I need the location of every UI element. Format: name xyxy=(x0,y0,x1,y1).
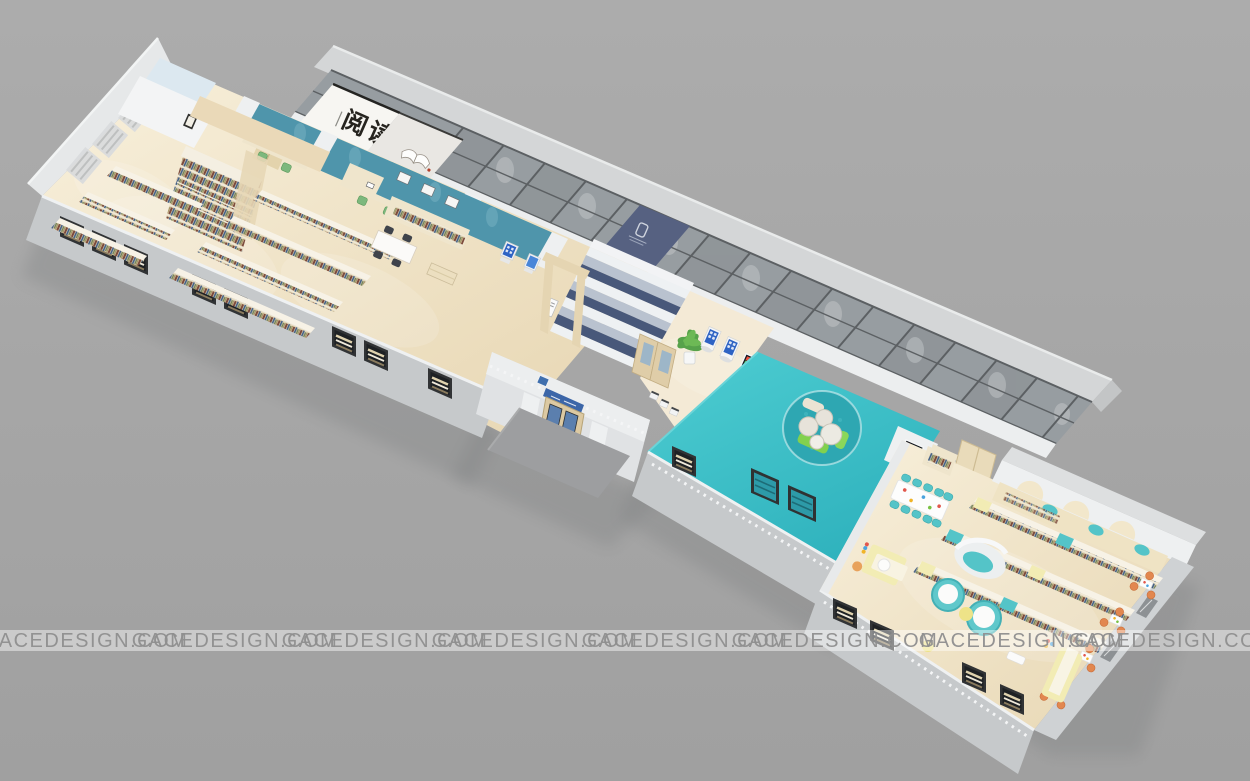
watermark-text: GACEDESIGN.COM xyxy=(1069,630,1250,652)
rendering-canvas: 阅读 xyxy=(0,0,1250,781)
watermark-text: GACEDESIGN.COM xyxy=(732,630,939,652)
sunken-pit xyxy=(783,391,861,465)
watermark-band: GACEDESIGN.COM GACEDESIGN.COM GACEDESIGN… xyxy=(0,630,1250,652)
isometric-library-rendering: 阅读 xyxy=(0,0,1250,781)
